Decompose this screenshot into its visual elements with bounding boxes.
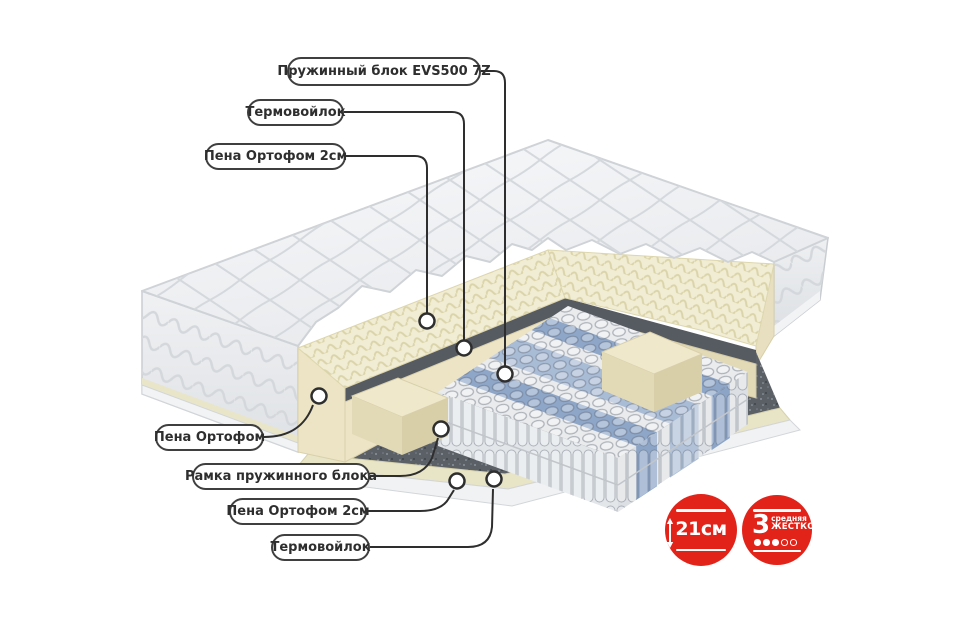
callout-spring-frame: Рамка пружинного блока xyxy=(192,463,370,490)
dot-thermofelt-bottom xyxy=(487,472,502,487)
dot-foam-side xyxy=(312,389,327,404)
callout-thermofelt-bottom: Термовойлок xyxy=(271,534,370,561)
callout-spring-block: Пружинный блок EVS500 7Z xyxy=(287,57,481,86)
dot-thermofelt-top xyxy=(457,341,472,356)
height-arrow-icon xyxy=(665,518,675,548)
dot-spring-block xyxy=(498,367,513,382)
mattress-layers-diagram: Пружинный блок EVS500 7Z Термовойлок Пен… xyxy=(0,0,975,622)
dot-spring-frame xyxy=(434,422,449,437)
firmness-badge-bottom-line xyxy=(753,550,801,553)
height-badge: 21см xyxy=(665,494,737,566)
firmness-word-2: жесткость xyxy=(771,523,834,532)
callout-foam2-bottom: Пена Ортофом 2см xyxy=(229,498,367,525)
firmness-number: 3 xyxy=(752,514,770,536)
firmness-badge: 3 средняя жесткость xyxy=(742,495,812,565)
height-value: 21см xyxy=(675,518,726,540)
height-badge-bottom-line xyxy=(676,549,726,552)
callout-foam2-top: Пена Ортофом 2см xyxy=(205,143,346,170)
callout-foam-side: Пена Ортофом xyxy=(155,424,264,451)
firmness-dots xyxy=(754,539,797,546)
dot-foam2-bottom xyxy=(450,474,465,489)
dot-foam2-top xyxy=(420,314,435,329)
callout-thermofelt-top: Термовойлок xyxy=(247,99,344,126)
height-badge-top-line xyxy=(676,509,726,512)
